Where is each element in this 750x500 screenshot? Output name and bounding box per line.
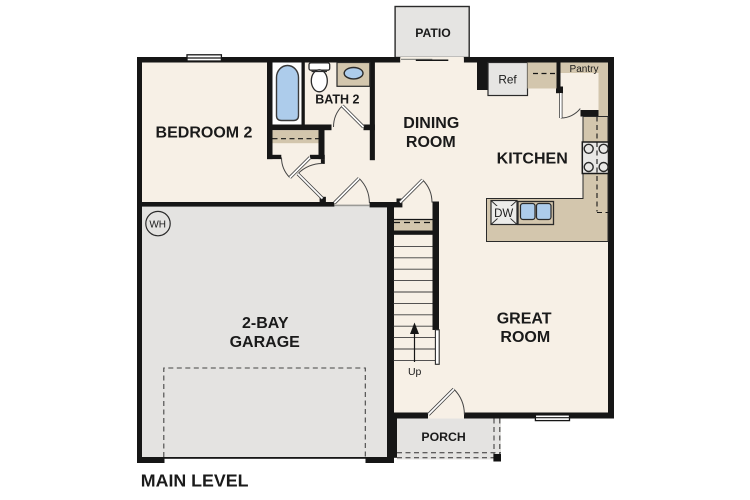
- svg-text:BEDROOM 2: BEDROOM 2: [156, 124, 253, 141]
- svg-text:Pantry: Pantry: [570, 64, 599, 75]
- svg-text:2-BAY: 2-BAY: [242, 315, 289, 332]
- svg-text:GARAGE: GARAGE: [230, 334, 301, 351]
- svg-text:Ref: Ref: [498, 72, 517, 86]
- svg-text:PATIO: PATIO: [415, 26, 450, 40]
- svg-text:ROOM: ROOM: [500, 329, 550, 346]
- svg-text:DW: DW: [494, 208, 513, 220]
- svg-text:DINING: DINING: [403, 115, 459, 132]
- svg-text:Up: Up: [408, 366, 422, 378]
- svg-text:KITCHEN: KITCHEN: [497, 150, 568, 167]
- svg-text:ROOM: ROOM: [406, 134, 456, 151]
- svg-text:BATH 2: BATH 2: [315, 93, 359, 107]
- svg-text:MAIN LEVEL: MAIN LEVEL: [141, 471, 249, 491]
- svg-text:WH: WH: [149, 220, 166, 231]
- svg-text:PORCH: PORCH: [421, 430, 466, 444]
- svg-text:GREAT: GREAT: [497, 310, 552, 327]
